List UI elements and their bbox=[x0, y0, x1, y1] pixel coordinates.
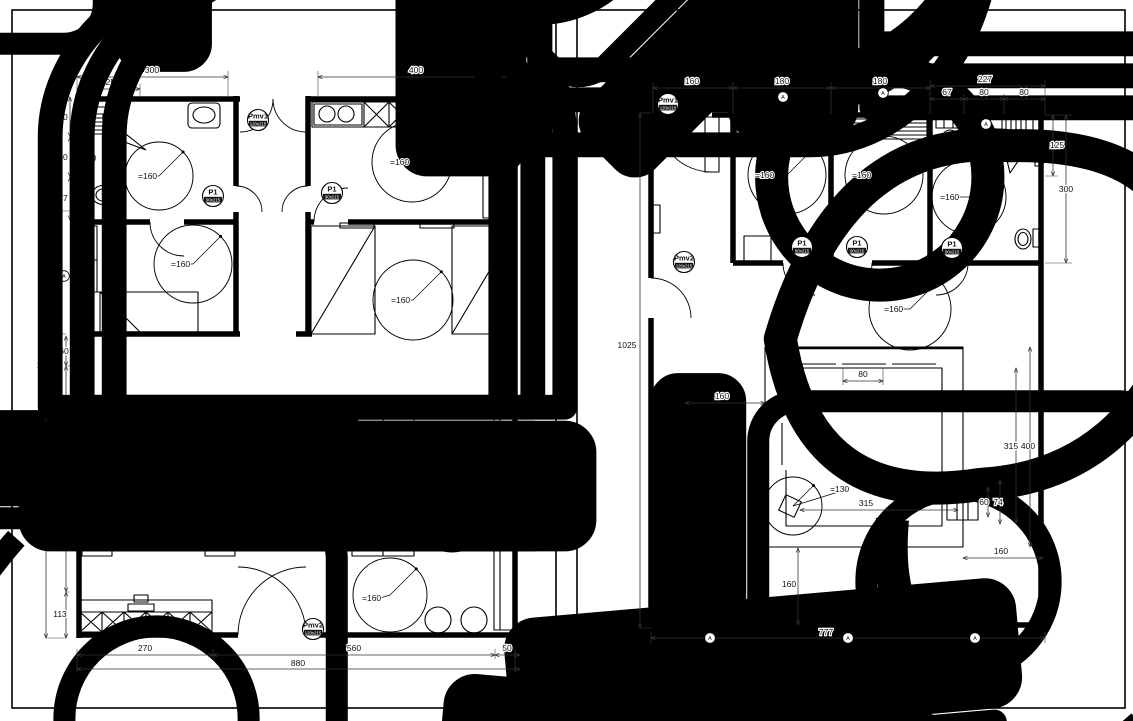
right-plan-bubble-2: A bbox=[981, 119, 992, 130]
left-plan-dim-text-13: 560 bbox=[347, 643, 361, 653]
door-tag-label: Pmv2 bbox=[674, 254, 694, 263]
clearance-label: =160 bbox=[171, 259, 190, 269]
bubble-letter: A bbox=[973, 636, 977, 642]
right-plan-bubble-1: A bbox=[878, 88, 889, 99]
right-plan-dim-text-19: 777 bbox=[819, 627, 833, 637]
bubble-letter: A bbox=[781, 95, 785, 101]
door-tag-size: 120x215 bbox=[676, 263, 693, 268]
right-plan-dim-text-10: 160 bbox=[715, 391, 729, 401]
clearance-label: =160 bbox=[391, 295, 410, 305]
bubble-letter: A bbox=[984, 122, 988, 128]
right-plan-dim-text-3: 227 bbox=[978, 74, 992, 84]
left-plan-dim-text-2: 400 bbox=[409, 65, 423, 75]
door-tag-size: 90x215 bbox=[206, 197, 221, 202]
clearance-label: =160 bbox=[138, 171, 157, 181]
door-tag-label: P1 bbox=[208, 188, 217, 197]
right-plan-dim-text-1: 180 bbox=[775, 76, 789, 86]
door-tag-label: Pmv1 bbox=[658, 96, 678, 105]
left-plan-dim-text-15: 880 bbox=[291, 658, 305, 668]
door-tag-size: 120x215 bbox=[305, 630, 322, 635]
right-plan-dim-text-15: 60 bbox=[979, 497, 989, 507]
right-plan-dim-text-14: 400 bbox=[1021, 441, 1035, 451]
door-tag-label: P1 bbox=[327, 185, 336, 194]
clearance-label: =160 bbox=[390, 157, 409, 167]
right-plan-dim-text-7: 125 bbox=[1050, 140, 1064, 150]
right-plan-dim-text-18: 160 bbox=[782, 579, 796, 589]
clearance-label: =160 bbox=[755, 170, 774, 180]
door-tag-label: P1 bbox=[797, 239, 806, 248]
door-tag-label: P1 bbox=[852, 239, 861, 248]
right-plan-door-tag-0: Pmv1120x215 bbox=[658, 94, 679, 115]
right-plan-dim-text-17: 160 bbox=[994, 546, 1008, 556]
right-plan-dim-text-9: 1025 bbox=[618, 340, 637, 350]
left-plan-door-tag-0: Pmv1120x215 bbox=[248, 110, 269, 131]
clearance-label: =160 bbox=[362, 593, 381, 603]
right-plan-dim-text-11: 80 bbox=[858, 369, 868, 379]
left-plan-door-tag-3: Pmv2120x215 bbox=[303, 619, 324, 640]
door-tag-size: 90x215 bbox=[945, 249, 960, 254]
wheelchair-icon bbox=[0, 52, 13, 721]
door-tag-size: 120x215 bbox=[250, 121, 267, 126]
right-plan-bubble-5: A bbox=[970, 633, 981, 644]
right-plan-bubble-4: A bbox=[843, 633, 854, 644]
right-plan-dim-text-12: 315 bbox=[859, 498, 873, 508]
right-plan-dim-text-16: 74 bbox=[993, 497, 1003, 507]
right-plan-door-tag-4: P190x215 bbox=[942, 238, 963, 259]
left-plan-dim-text-10: 113 bbox=[53, 609, 67, 619]
right-plan-door-tag-2: P190x215 bbox=[792, 237, 813, 258]
bubble-letter: A bbox=[708, 636, 712, 642]
door-tag-label: Pmv2 bbox=[303, 621, 323, 630]
door-tag-label: Pmv1 bbox=[248, 112, 268, 121]
cad-canvas: =160=160=160=160=160=1603001254008080672… bbox=[0, 0, 1133, 721]
left-plan-door-tag-1: P190x215 bbox=[203, 186, 224, 207]
door-tag-label: P1 bbox=[947, 240, 956, 249]
right-plan-dim-text-2: 180 bbox=[873, 76, 887, 86]
right-plan-bubble-0: A bbox=[778, 92, 789, 103]
clearance-label: =160 bbox=[852, 170, 871, 180]
right-plan-dim-text-0: 160 bbox=[685, 76, 699, 86]
right-plan-door-tag-3: P190x215 bbox=[847, 237, 868, 258]
right-plan-dim-text-4: 67 bbox=[942, 87, 952, 97]
door-tag-size: 90x215 bbox=[850, 248, 865, 253]
clearance-label: =130 bbox=[830, 484, 849, 494]
bubble-letter: A bbox=[846, 636, 850, 642]
right-plan-dim-text-5: 80 bbox=[979, 87, 989, 97]
left-plan-door-tag-2: P190x215 bbox=[322, 183, 343, 204]
left-plan-dim-text-14: 50 bbox=[502, 643, 512, 653]
door-tag-size: 90x215 bbox=[325, 194, 340, 199]
clearance-label: =160 bbox=[940, 192, 959, 202]
right-plan-dim-text-8: 300 bbox=[1059, 184, 1073, 194]
door-tag-size: 120x215 bbox=[660, 105, 677, 110]
bubble-letter: A bbox=[62, 274, 66, 280]
left-plan-dim-text-0: 300 bbox=[145, 65, 159, 75]
right-plan-dim-text-13: 315 bbox=[1004, 441, 1018, 451]
right-plan-dim-text-6: 80 bbox=[1019, 87, 1029, 97]
left-plan-dim-text-12: 270 bbox=[138, 643, 152, 653]
right-plan-bubble-3: A bbox=[705, 633, 716, 644]
door-tag-size: 90x215 bbox=[795, 248, 810, 253]
right-plan-door-tag-1: Pmv2120x215 bbox=[674, 252, 695, 273]
bubble-letter: A bbox=[881, 91, 885, 97]
clearance-label: =160 bbox=[884, 304, 903, 314]
